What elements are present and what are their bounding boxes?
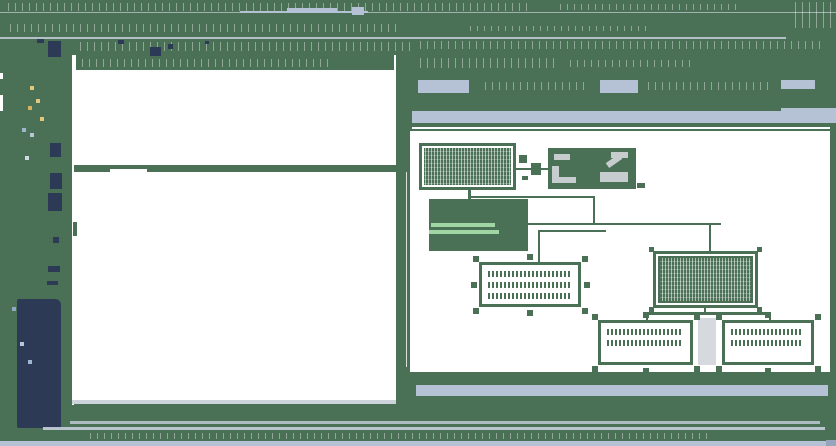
grid-row-2-cell-1[interactable] [140, 92, 300, 99]
grid-selection-blob [77, 125, 93, 157]
selection-handle-3[interactable] [473, 308, 479, 314]
node-port-2 [649, 307, 654, 312]
resource-glyph-1-top [554, 154, 570, 160]
grid-row-1-cell-1[interactable] [220, 81, 300, 88]
right-panel-button-2[interactable] [600, 80, 638, 93]
grid-row-5-cell-1[interactable] [312, 124, 352, 131]
status-bar-text [90, 433, 710, 439]
edge-mark-0 [0, 73, 3, 79]
selection-handle-2[interactable] [815, 314, 821, 320]
selection-handle-1[interactable] [643, 312, 649, 318]
link-bit-2 [522, 176, 528, 180]
grid-row-0-cell-1[interactable] [168, 71, 228, 78]
selection-handle-1[interactable] [527, 254, 533, 260]
selection-handle-4[interactable] [527, 310, 533, 316]
grid-header-noise [82, 59, 332, 67]
tool-icon-2[interactable] [50, 173, 62, 189]
right-header-noise-1 [570, 60, 690, 67]
link-bit-1 [531, 163, 541, 175]
window-bottom-bar [0, 441, 836, 446]
selection-handle-0[interactable] [716, 314, 722, 320]
selection-handle-7[interactable] [584, 282, 590, 288]
annotation-text-line-1 [429, 230, 499, 234]
node-port-1 [757, 247, 762, 252]
link-bit-3 [637, 183, 645, 188]
connector-7 [538, 230, 540, 262]
canvas-bottom-border [410, 372, 836, 378]
link-bit-0 [519, 155, 527, 163]
grid-row-5-cell-0[interactable] [96, 124, 300, 131]
right-control-noise-1 [648, 82, 768, 90]
grid-row-0-cell-0[interactable] [76, 71, 156, 78]
grid-row-0-cell-2[interactable] [240, 71, 300, 78]
grid-row-7-cell-2[interactable] [356, 145, 392, 152]
left-toolbar-dot-0 [30, 86, 34, 90]
start-node[interactable] [419, 143, 516, 190]
toolbar-icon-5[interactable] [205, 41, 209, 44]
grid-row-6-cell-0[interactable] [76, 134, 300, 141]
connector-5 [709, 225, 711, 251]
right-control-noise-0 [485, 82, 585, 90]
title-text-noise-0 [8, 3, 528, 11]
grid-row-6-cell-2[interactable] [358, 134, 388, 141]
grid-row-0-cell-4[interactable] [358, 71, 392, 78]
grid-row-7-cell-1[interactable] [312, 145, 352, 152]
grid-row-6-cell-1[interactable] [312, 134, 354, 141]
node-text-noise-1 [731, 340, 803, 346]
node-text-noise-0 [607, 329, 682, 335]
resource-glyph-1-base [552, 177, 576, 183]
selection-handle-1[interactable] [765, 312, 771, 318]
grid-band-notch [110, 169, 147, 173]
grid-row-7-cell-0[interactable] [90, 145, 300, 152]
annotation-text-line-0 [431, 223, 495, 227]
connector-3 [593, 196, 595, 224]
title-fragment-2 [352, 7, 364, 15]
left-panel-hscrollbar[interactable] [72, 400, 396, 404]
grid-row-8-cell-0[interactable] [76, 156, 196, 163]
left-panel-edge-mark [73, 222, 77, 236]
side-navy-panel [17, 299, 61, 428]
canvas-hscrollbar[interactable] [416, 385, 828, 396]
node-text-noise-1 [488, 282, 570, 288]
diagram-tab-active[interactable] [781, 108, 836, 123]
tool-icon-5[interactable] [48, 266, 60, 272]
selection-handle-5[interactable] [582, 308, 588, 314]
footer-rule-1 [70, 421, 820, 424]
connector-2 [471, 196, 595, 198]
diagram-canvas[interactable] [410, 131, 830, 372]
toolbar-icon-1[interactable] [48, 41, 61, 57]
connector-6 [540, 230, 606, 232]
grid-row-2-cell-2[interactable] [312, 92, 354, 99]
grid-row-8-cell-1[interactable] [205, 156, 300, 163]
grid-row-4-cell-3[interactable] [358, 113, 392, 120]
grid-row-0-cell-3[interactable] [312, 71, 352, 78]
tool-icon-3[interactable] [48, 193, 62, 211]
menu-text-noise-1 [470, 26, 650, 31]
connector-9 [647, 312, 771, 315]
grid-row-4-cell-0[interactable] [76, 113, 146, 120]
node-text-noise-0 [731, 329, 803, 335]
title-text-noise-2 [795, 2, 833, 28]
grid-row-8-cell-2[interactable] [312, 156, 354, 163]
tool-icon-6[interactable] [47, 281, 58, 285]
selection-handle-2[interactable] [694, 314, 700, 320]
left-toolbar-dot-9 [12, 307, 16, 311]
toolbar-icon-2[interactable] [118, 40, 124, 44]
tool-icon-1[interactable] [50, 143, 61, 157]
right-panel-button-3[interactable] [781, 80, 815, 89]
left-toolbar-dot-6 [25, 156, 29, 160]
selection-handle-0[interactable] [473, 256, 479, 262]
left-toolbar-dot-4 [22, 128, 26, 132]
grid-row-1-cell-3[interactable] [358, 81, 388, 88]
left-toolbar-dot-5 [30, 133, 34, 137]
app-window: { "window": {"kind": "workflow-designer"… [0, 0, 836, 446]
panel-divider-highlight [406, 172, 407, 367]
toolbar-icon-0[interactable] [37, 39, 44, 43]
connector-4 [528, 223, 721, 225]
grid-row-3-cell-1[interactable] [312, 103, 352, 110]
grid-row-8-cell-3[interactable] [358, 156, 388, 163]
node-port-3 [757, 307, 762, 312]
toolbar-icon-4[interactable] [168, 44, 173, 49]
toolbar-icon-3[interactable] [150, 47, 161, 56]
grid-row-1-cell-0[interactable] [90, 81, 210, 88]
left-toolbar-dot-2 [28, 106, 32, 110]
toolbar-noise-0 [80, 42, 410, 51]
node-text-noise-1 [607, 340, 682, 346]
grid-row-5-cell-2[interactable] [356, 124, 392, 131]
edge-mark-1 [0, 95, 3, 111]
node-text-noise-2 [488, 293, 570, 299]
footer-rule-2 [43, 427, 825, 430]
canvas-top-rule [412, 127, 830, 129]
left-toolbar-dot-8 [28, 360, 32, 364]
left-toolbar-dot-7 [20, 342, 24, 346]
title-text-noise-1 [560, 4, 740, 10]
right-panel-button-1[interactable] [418, 80, 469, 93]
grid-row-4-cell-2[interactable] [312, 113, 354, 120]
grid-row-2-cell-3[interactable] [356, 92, 392, 99]
grid-row-2-cell-0[interactable] [76, 92, 126, 99]
title-fragment-1 [287, 8, 337, 12]
left-toolbar-dot-1 [36, 99, 40, 103]
resource-glyph-2-base [600, 172, 628, 182]
selection-handle-6[interactable] [471, 282, 477, 288]
grid-row-4-cell-1[interactable] [155, 113, 300, 120]
left-toolbar-dot-3 [40, 117, 44, 121]
diagram-tab-bar[interactable] [412, 111, 830, 123]
main-process-node[interactable] [653, 251, 758, 308]
grid-row-3-cell-2[interactable] [358, 103, 388, 110]
selection-handle-0[interactable] [592, 314, 598, 320]
toolbar-noise-1 [420, 41, 820, 49]
right-header-noise-0 [420, 58, 560, 68]
grid-row-3-cell-0[interactable] [100, 103, 300, 110]
grid-row-1-cell-2[interactable] [312, 81, 352, 88]
tool-icon-4[interactable] [53, 237, 59, 243]
menu-text-noise-0 [10, 24, 400, 32]
node-port-0 [649, 247, 654, 252]
selection-handle-2[interactable] [582, 256, 588, 262]
node-text-noise-0 [488, 271, 570, 277]
resize-grip[interactable] [826, 440, 836, 446]
connector-shadow [698, 318, 716, 365]
